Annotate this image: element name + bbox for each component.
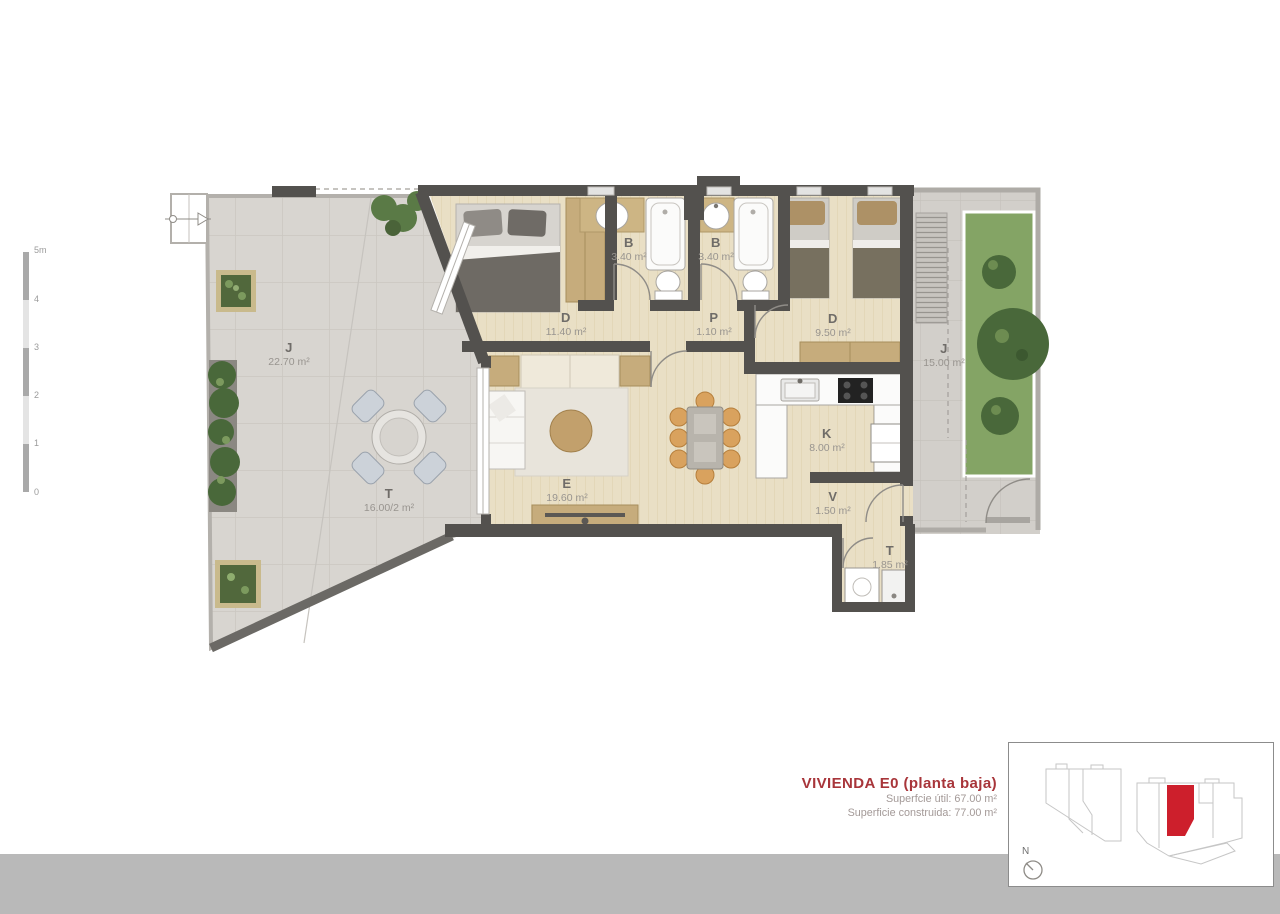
bathtub-icon (646, 198, 685, 270)
scale-label-4: 4 (34, 294, 39, 304)
built-area-text: Superficie construida: 77.00 m² (637, 806, 997, 820)
twin-bed-icon (853, 198, 901, 298)
floor-plan-page: J 22.70 m² T 16.00/2 m² D 11.40 m² B 3.4… (0, 0, 1280, 914)
window-slit (797, 187, 821, 195)
scale-label-3: 3 (34, 342, 39, 352)
title-block: VIVIENDA E0 (planta baja) Superfcie útil… (637, 775, 997, 820)
fridge-icon (871, 424, 904, 462)
entry-gate (165, 194, 211, 243)
planter-icon (216, 270, 256, 312)
laundry-sink-icon (882, 570, 906, 606)
hedge-icon (208, 360, 240, 512)
window-slit (707, 187, 731, 195)
coffee-table-icon (550, 410, 592, 452)
planter-icon (215, 560, 261, 608)
site-locator-map (1009, 743, 1273, 886)
north-label: N (1022, 846, 1029, 857)
double-bed-icon (456, 204, 560, 312)
window-slit (588, 187, 614, 195)
kitchen-sink-icon (781, 379, 819, 402)
side-table-icon (620, 356, 650, 386)
toilet-icon (742, 271, 769, 300)
scale-label-0: 0 (34, 487, 39, 497)
sofa-icon (486, 391, 525, 469)
highlighted-unit (1167, 785, 1194, 836)
plan-title: VIVIENDA E0 (planta baja) (637, 775, 997, 792)
site-locator: N (1008, 742, 1274, 887)
scale-label-5m: 5m (34, 245, 47, 255)
scale-bar (23, 252, 29, 492)
side-table-icon (489, 356, 519, 386)
cooktop-icon (838, 378, 873, 403)
window-slit (868, 187, 892, 195)
wardrobe-icon (800, 342, 900, 364)
toilet-icon (655, 271, 682, 300)
bathtub-icon (734, 198, 773, 270)
bench-sofa-icon (521, 355, 619, 388)
scale-label-1: 1 (34, 438, 39, 448)
laundry-fixtures (845, 568, 906, 606)
sliding-window (477, 368, 489, 514)
useful-area-text: Superfcie útil: 67.00 m² (637, 792, 997, 806)
site-outline (1046, 764, 1242, 864)
north-arrow-icon (1024, 861, 1042, 879)
washer-icon (845, 568, 879, 606)
scale-label-2: 2 (34, 390, 39, 400)
